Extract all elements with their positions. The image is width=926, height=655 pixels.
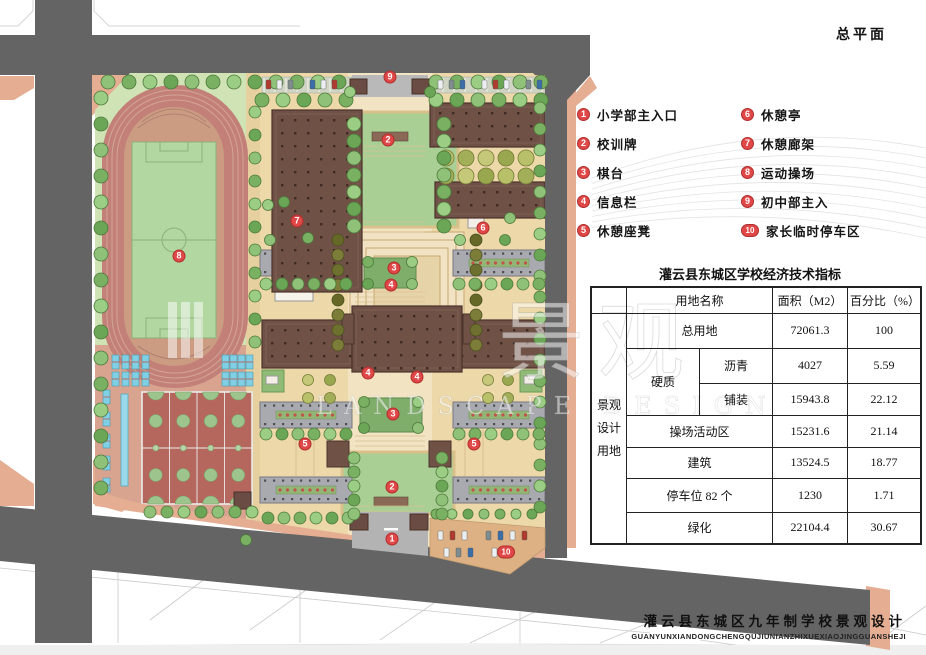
basketball-courts [142, 392, 252, 504]
plan-marker-4: 4 [411, 371, 424, 384]
legend-number-badge: 4 [577, 195, 590, 208]
legend-number-badge: 1 [577, 108, 590, 121]
legend-item: 2校训牌 [577, 129, 727, 158]
project-footer: 灌云县东城区九年制学校景观设计 GUANYUNXIANDONGCHENGQUJI… [631, 610, 906, 641]
legend-item: 10家长临时停车区 [741, 216, 891, 245]
legend-number-badge: 2 [577, 137, 590, 150]
legend-label: 校训牌 [597, 134, 638, 153]
legend-label: 信息栏 [597, 192, 638, 211]
legend-number-badge: 6 [741, 108, 754, 121]
pct-cell: 1.71 [848, 478, 922, 512]
legend-label: 休憩廊架 [761, 134, 815, 153]
plan-marker-1: 1 [386, 533, 399, 546]
project-title: 灌云县东城区九年制学校景观设计 [631, 610, 906, 630]
legend-number-badge: 9 [741, 195, 754, 208]
project-title-pinyin: GUANYUNXIANDONGCHENGQUJIUNIANZHIXUEXIAOJ… [631, 632, 906, 641]
pct-cell: 5.59 [848, 348, 922, 383]
name-cell: 停车位 82 个 [627, 478, 773, 512]
sand-strip [121, 394, 128, 486]
legend-number-badge: 3 [577, 166, 590, 179]
area-cell: 22104.4 [773, 512, 848, 544]
table-row: 建筑13524.518.77 [591, 447, 921, 478]
legend-item: 8运动操场 [741, 158, 891, 187]
legend: 1小学部主入口2校训牌3棋台4信息栏5休憩座凳6休憩亭7休憩廊架8运动操场9初中… [577, 100, 891, 245]
campus [95, 73, 545, 573]
pct-cell: 30.67 [848, 512, 922, 544]
legend-item: 1小学部主入口 [577, 100, 727, 129]
plan-marker-4: 4 [362, 367, 375, 380]
name-cell: 建筑 [627, 447, 773, 478]
area-cell: 1230 [773, 478, 848, 512]
legend-label: 初中部主入 [761, 192, 829, 211]
area-cell: 13524.5 [773, 447, 848, 478]
plan-marker-3: 3 [388, 262, 401, 275]
indicator-table: 用地名称面积（M2）百分比（%）景观设计用地总用地72061.3100硬质沥青4… [590, 286, 922, 545]
name-cell: 绿化 [627, 512, 773, 544]
col-header-name: 用地名称 [627, 287, 773, 313]
plan-marker-6: 6 [477, 222, 490, 235]
table-row: 停车位 82 个12301.71 [591, 478, 921, 512]
area-cell: 15943.8 [773, 383, 848, 415]
table-row: 景观设计用地总用地72061.3100 [591, 313, 921, 348]
plan-marker-4: 4 [385, 279, 398, 292]
plan-marker-8: 8 [173, 250, 186, 263]
legend-label: 休憩座凳 [597, 221, 651, 240]
plan-marker-10: 10 [497, 546, 515, 559]
legend-number-badge: 8 [741, 166, 754, 179]
legend-item: 6休憩亭 [741, 100, 891, 129]
legend-item: 9初中部主入 [741, 187, 891, 216]
soccer-field [132, 142, 216, 338]
area-cell: 15231.6 [773, 415, 848, 447]
legend-label: 运动操场 [761, 163, 815, 182]
pct-cell: 21.14 [848, 415, 922, 447]
table-row: 硬质沥青40275.59 [591, 348, 921, 383]
plan-marker-9: 9 [384, 71, 397, 84]
bottom-fade-band [0, 645, 926, 655]
legend-number-badge: 5 [577, 224, 590, 237]
legend-label: 休憩亭 [761, 105, 802, 124]
col-header-pct: 百分比（%） [848, 287, 922, 313]
legend-item: 3棋台 [577, 158, 727, 187]
plan-marker-7: 7 [291, 215, 304, 228]
pct-cell: 18.77 [848, 447, 922, 478]
plan-marker-5: 5 [299, 438, 312, 451]
table-row: 绿化22104.430.67 [591, 512, 921, 544]
group-cell: 硬质 [627, 348, 700, 415]
name-cell: 沥青 [700, 348, 773, 383]
legend-item: 4信息栏 [577, 187, 727, 216]
name-cell: 铺装 [700, 383, 773, 415]
running-track [102, 85, 248, 388]
pct-cell: 100 [848, 313, 922, 348]
page-title: 总平面 [836, 24, 887, 44]
legend-label: 棋台 [597, 163, 624, 182]
legend-item: 7休憩廊架 [741, 129, 891, 158]
legend-number-badge: 7 [741, 137, 754, 150]
area-cell: 72061.3 [773, 313, 848, 348]
name-cell: 操场活动区 [627, 415, 773, 447]
table-row: 操场活动区15231.621.14 [591, 415, 921, 447]
name-cell: 总用地 [627, 313, 773, 348]
legend-number-badge: 10 [741, 224, 759, 237]
col-header-area: 面积（M2） [773, 287, 848, 313]
area-cell: 4027 [773, 348, 848, 383]
indicator-table-title: 灌云县东城区学校经济技术指标 [592, 264, 908, 283]
legend-label: 小学部主入口 [597, 105, 678, 124]
plan-marker-2: 2 [386, 481, 399, 494]
side-header: 景观设计用地 [591, 313, 627, 544]
legend-item: 5休憩座凳 [577, 216, 727, 245]
plan-marker-5: 5 [468, 438, 481, 451]
plan-marker-3: 3 [387, 408, 400, 421]
pct-cell: 22.12 [848, 383, 922, 415]
plan-marker-2: 2 [382, 134, 395, 147]
legend-label: 家长临时停车区 [766, 221, 861, 240]
